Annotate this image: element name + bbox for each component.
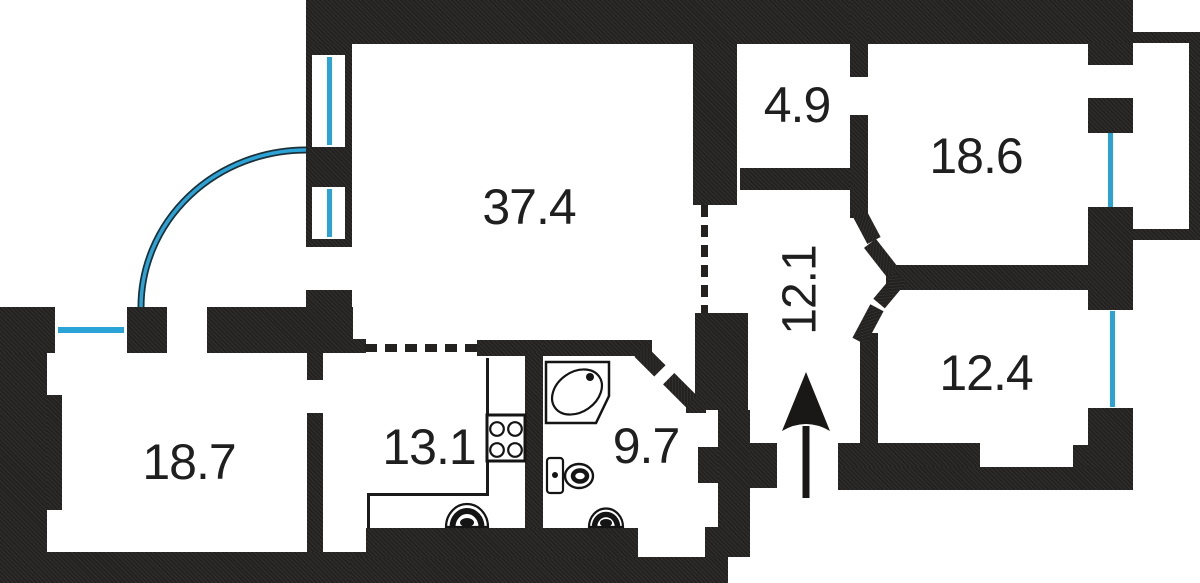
room-label-kitchen: 13.1 [382, 418, 475, 476]
kitchen-sink-icon [446, 504, 488, 527]
stove-icon [487, 415, 525, 461]
bathtub-icon [543, 360, 610, 424]
room-label-bedroom-left: 18.7 [142, 433, 235, 491]
room-label-living: 37.4 [482, 178, 575, 236]
entrance-arrow-icon [782, 372, 830, 498]
room-label-closet: 4.9 [764, 76, 831, 134]
bathroom-sink-icon [589, 509, 623, 528]
room-label-bedroom-top-right: 18.6 [929, 127, 1022, 185]
room-label-hallway: 12.1 [773, 245, 828, 334]
room-label-bathroom: 9.7 [613, 417, 680, 475]
floor-plan: 37.4 4.9 18.6 12.1 12.4 18.7 13.1 9.7 [0, 0, 1200, 583]
balcony-door-swing-arc [141, 150, 306, 307]
toilet-icon [547, 458, 593, 493]
room-label-bedroom-right: 12.4 [939, 344, 1032, 402]
fixtures-layer [0, 0, 1200, 583]
